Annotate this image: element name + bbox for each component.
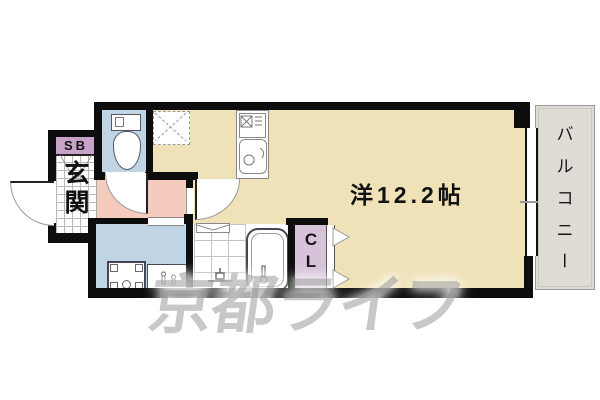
kitchen-sink-icon: [239, 139, 267, 174]
bathroom-folding-door: [196, 223, 230, 233]
balcony-area: バ ル コ ニ ー: [535, 105, 595, 290]
balcony-char: ニ: [557, 216, 574, 241]
entrance-step-line: [96, 180, 97, 218]
wall-entrance-left-upper: [48, 130, 56, 181]
washer-foot: [135, 264, 143, 272]
toilet-tank-icon: [111, 114, 141, 131]
balcony-char: コ: [557, 184, 574, 209]
balcony-window: [525, 128, 538, 256]
entrance-door-swing: [10, 181, 54, 226]
wall-washroom-west: [88, 218, 96, 298]
balcony-char: バ: [557, 120, 574, 145]
wall-toilet-right: [146, 102, 153, 180]
shoebox-area: SB: [56, 137, 96, 156]
entrance-label: 玄 関: [63, 160, 91, 218]
main-room-label: 洋12.2帖: [350, 176, 465, 210]
wall-closet-top: [286, 218, 328, 225]
balcony-label: バ ル コ ニ ー: [536, 110, 594, 282]
window-center-tick: [520, 201, 538, 203]
wall-under-toilet-left: [94, 172, 105, 180]
closet-char: C: [305, 231, 317, 249]
watermark-text: 京都ライフ: [144, 254, 472, 346]
wall-hall-east-upper: [186, 172, 193, 188]
wall-top: [94, 102, 530, 110]
wall-topright-block: [514, 110, 530, 128]
washroom-sliding-door: [148, 217, 184, 226]
ceiling-storage-marker: [153, 111, 190, 145]
toilet-knob: [115, 117, 124, 127]
balcony-char: ル: [557, 152, 574, 177]
main-room-doorway: [186, 188, 194, 214]
wall-entrance-right: [94, 102, 102, 178]
entrance-char: 関: [64, 189, 89, 218]
entrance-char: 玄: [64, 160, 89, 189]
washer-foot: [110, 264, 118, 272]
floorplan-canvas: SB バ ル コ ニ ー: [0, 0, 600, 400]
wall-washroom-top-left: [88, 218, 148, 224]
balcony-char: ー: [553, 252, 578, 269]
stove-icon: [239, 113, 266, 138]
shoebox-label: SB: [64, 138, 88, 153]
